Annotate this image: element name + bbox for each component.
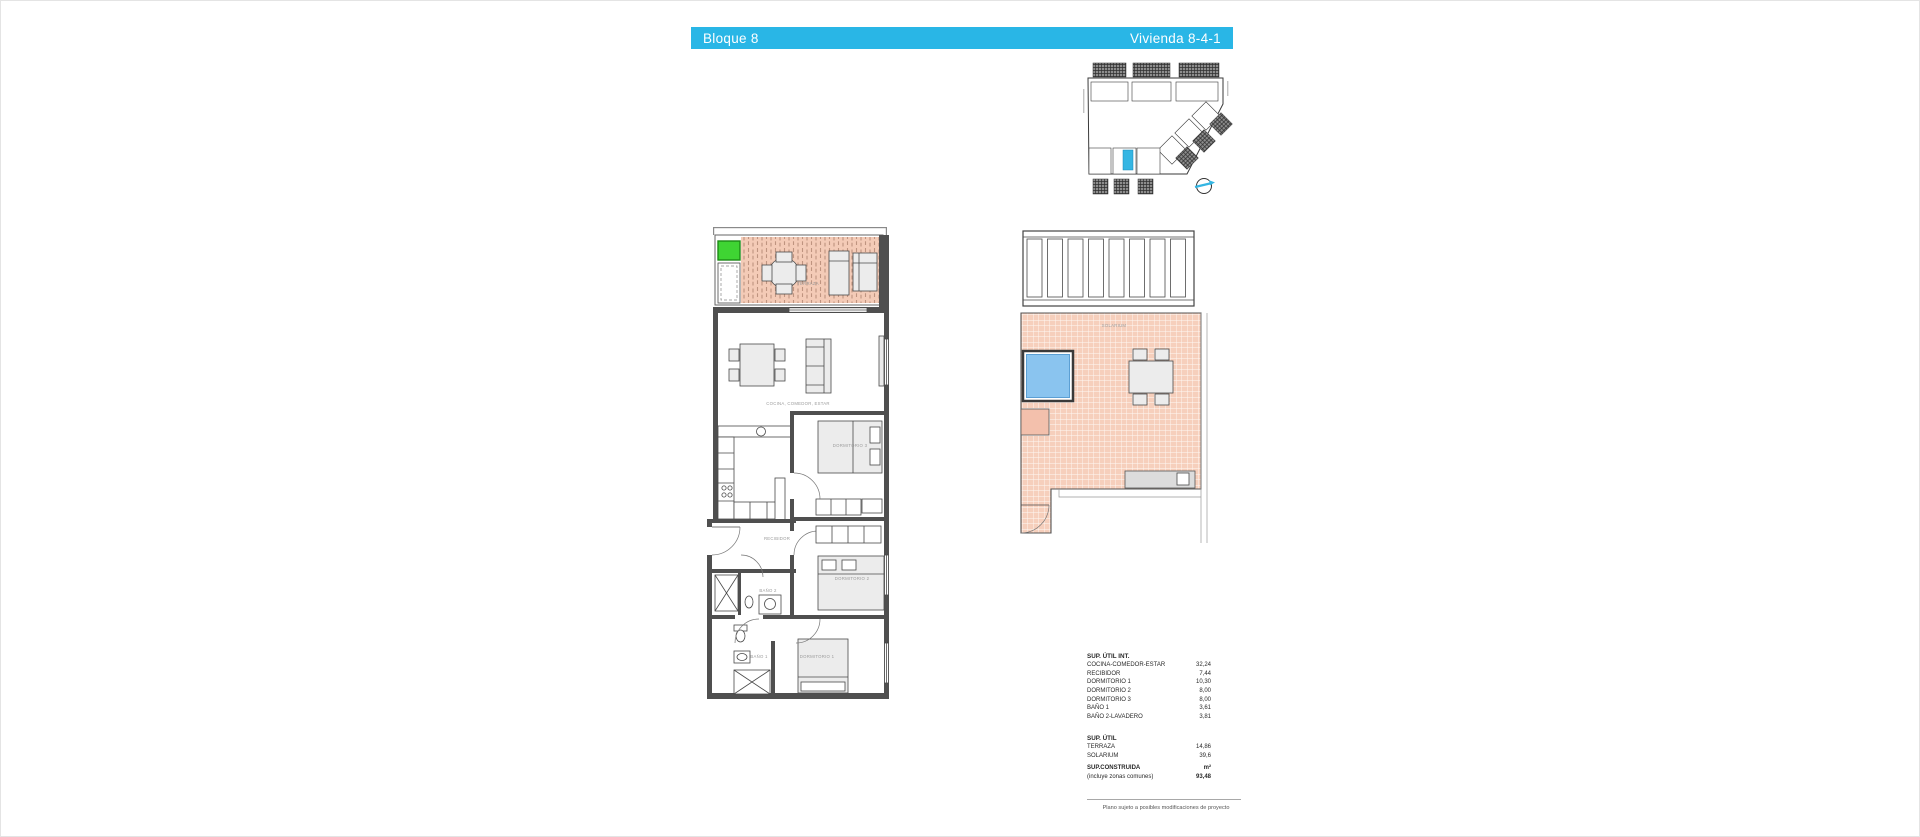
- facade-wall: [713, 307, 889, 313]
- construida-header: SUP.CONSTRUIDAm²: [1087, 765, 1211, 774]
- footer-note: Plano sujeto a posibles modificaciones d…: [1081, 805, 1251, 811]
- bedroom-2: DORMITORIO 2: [816, 526, 884, 610]
- dorm3-label: DORMITORIO 3: [833, 443, 868, 448]
- terraza-label: TERRAZA: [797, 281, 819, 286]
- site-units-bottom-row: [1089, 148, 1160, 174]
- street-text-mark-left: [1083, 89, 1084, 113]
- solarium-label: SOLARIUM: [1102, 323, 1127, 328]
- solarium-deck: SOLARIUM: [1021, 313, 1207, 543]
- bathroom-1: BAÑO 1: [734, 619, 770, 694]
- bano1-label: BAÑO 1: [750, 654, 768, 659]
- site-key-plan: [1079, 54, 1254, 204]
- terrace: TERRAZA: [715, 235, 889, 307]
- floor-plan: TERRAZA: [701, 221, 901, 713]
- kitchen: [718, 426, 792, 521]
- bedroom-3: DORMITORIO 3: [816, 421, 882, 515]
- util-int-title: SUP. ÚTIL INT.: [1087, 653, 1211, 662]
- footer-separator: [1087, 799, 1241, 800]
- green-marker: [718, 241, 740, 260]
- solarium-plan: SOLARIUM: [1011, 221, 1216, 551]
- highlighted-unit: [1123, 150, 1133, 170]
- north-compass-icon: [1195, 179, 1215, 194]
- entry-door-arc: [712, 527, 740, 555]
- recibidor-label: RECIBIDOR: [764, 536, 790, 541]
- dining-table: [729, 344, 785, 386]
- street-text-mark-right: [1227, 81, 1228, 96]
- dorm1-label: DORMITORIO 1: [800, 654, 835, 659]
- table-row: TERRAZA14,86: [1087, 744, 1211, 753]
- table-row: DORMITORIO 28,00: [1087, 688, 1211, 697]
- pergola: [1023, 231, 1194, 306]
- dorm2-label: DORMITORIO 2: [835, 576, 870, 581]
- table-row: COCINA-COMEDOR-ESTAR32,24: [1087, 662, 1211, 671]
- table-row: DORMITORIO 110,30: [1087, 679, 1211, 688]
- unit-title: Vivienda 8-4-1: [1130, 31, 1221, 46]
- tv-unit: [879, 336, 884, 386]
- outdoor-counter: [1125, 471, 1195, 488]
- sofa: [806, 339, 831, 393]
- table-row: BAÑO 13,61: [1087, 705, 1211, 714]
- table-row: RECIBIDOR7,44: [1087, 671, 1211, 680]
- sun-loungers: [829, 251, 877, 295]
- cocina-label: COCINA, COMEDOR, ESTAR: [766, 401, 829, 406]
- kitchen-peninsula: [775, 478, 785, 521]
- site-buildings-hatched: [1093, 63, 1219, 77]
- stair-bulkhead: [1021, 409, 1049, 435]
- areas-table: SUP. ÚTIL INT. COCINA-COMEDOR-ESTAR32,24…: [1087, 653, 1211, 783]
- roof-edge: [713, 227, 887, 235]
- bathroom-2: BAÑO 2: [715, 555, 781, 614]
- plunge-pool: [1023, 351, 1073, 401]
- construida-value-row: (incluye zonas comunes)93,48: [1087, 774, 1211, 783]
- bano2-label: BAÑO 2: [759, 588, 777, 593]
- block-title: Bloque 8: [703, 31, 759, 46]
- plan-sheet: Bloque 8 Vivienda 8-4-1: [0, 0, 1920, 837]
- site-units-top-row: [1091, 82, 1218, 101]
- util-title: SUP. ÚTIL: [1087, 735, 1211, 744]
- title-bar: Bloque 8 Vivienda 8-4-1: [691, 27, 1233, 49]
- living-room: COCINA, COMEDOR, ESTAR: [729, 336, 884, 406]
- kitchen-sink: [757, 427, 766, 436]
- table-row: BAÑO 2-LAVADERO3,81: [1087, 714, 1211, 723]
- table-row: SOLARIUM39,6: [1087, 753, 1211, 762]
- bedroom-1: DORMITORIO 1: [796, 619, 848, 693]
